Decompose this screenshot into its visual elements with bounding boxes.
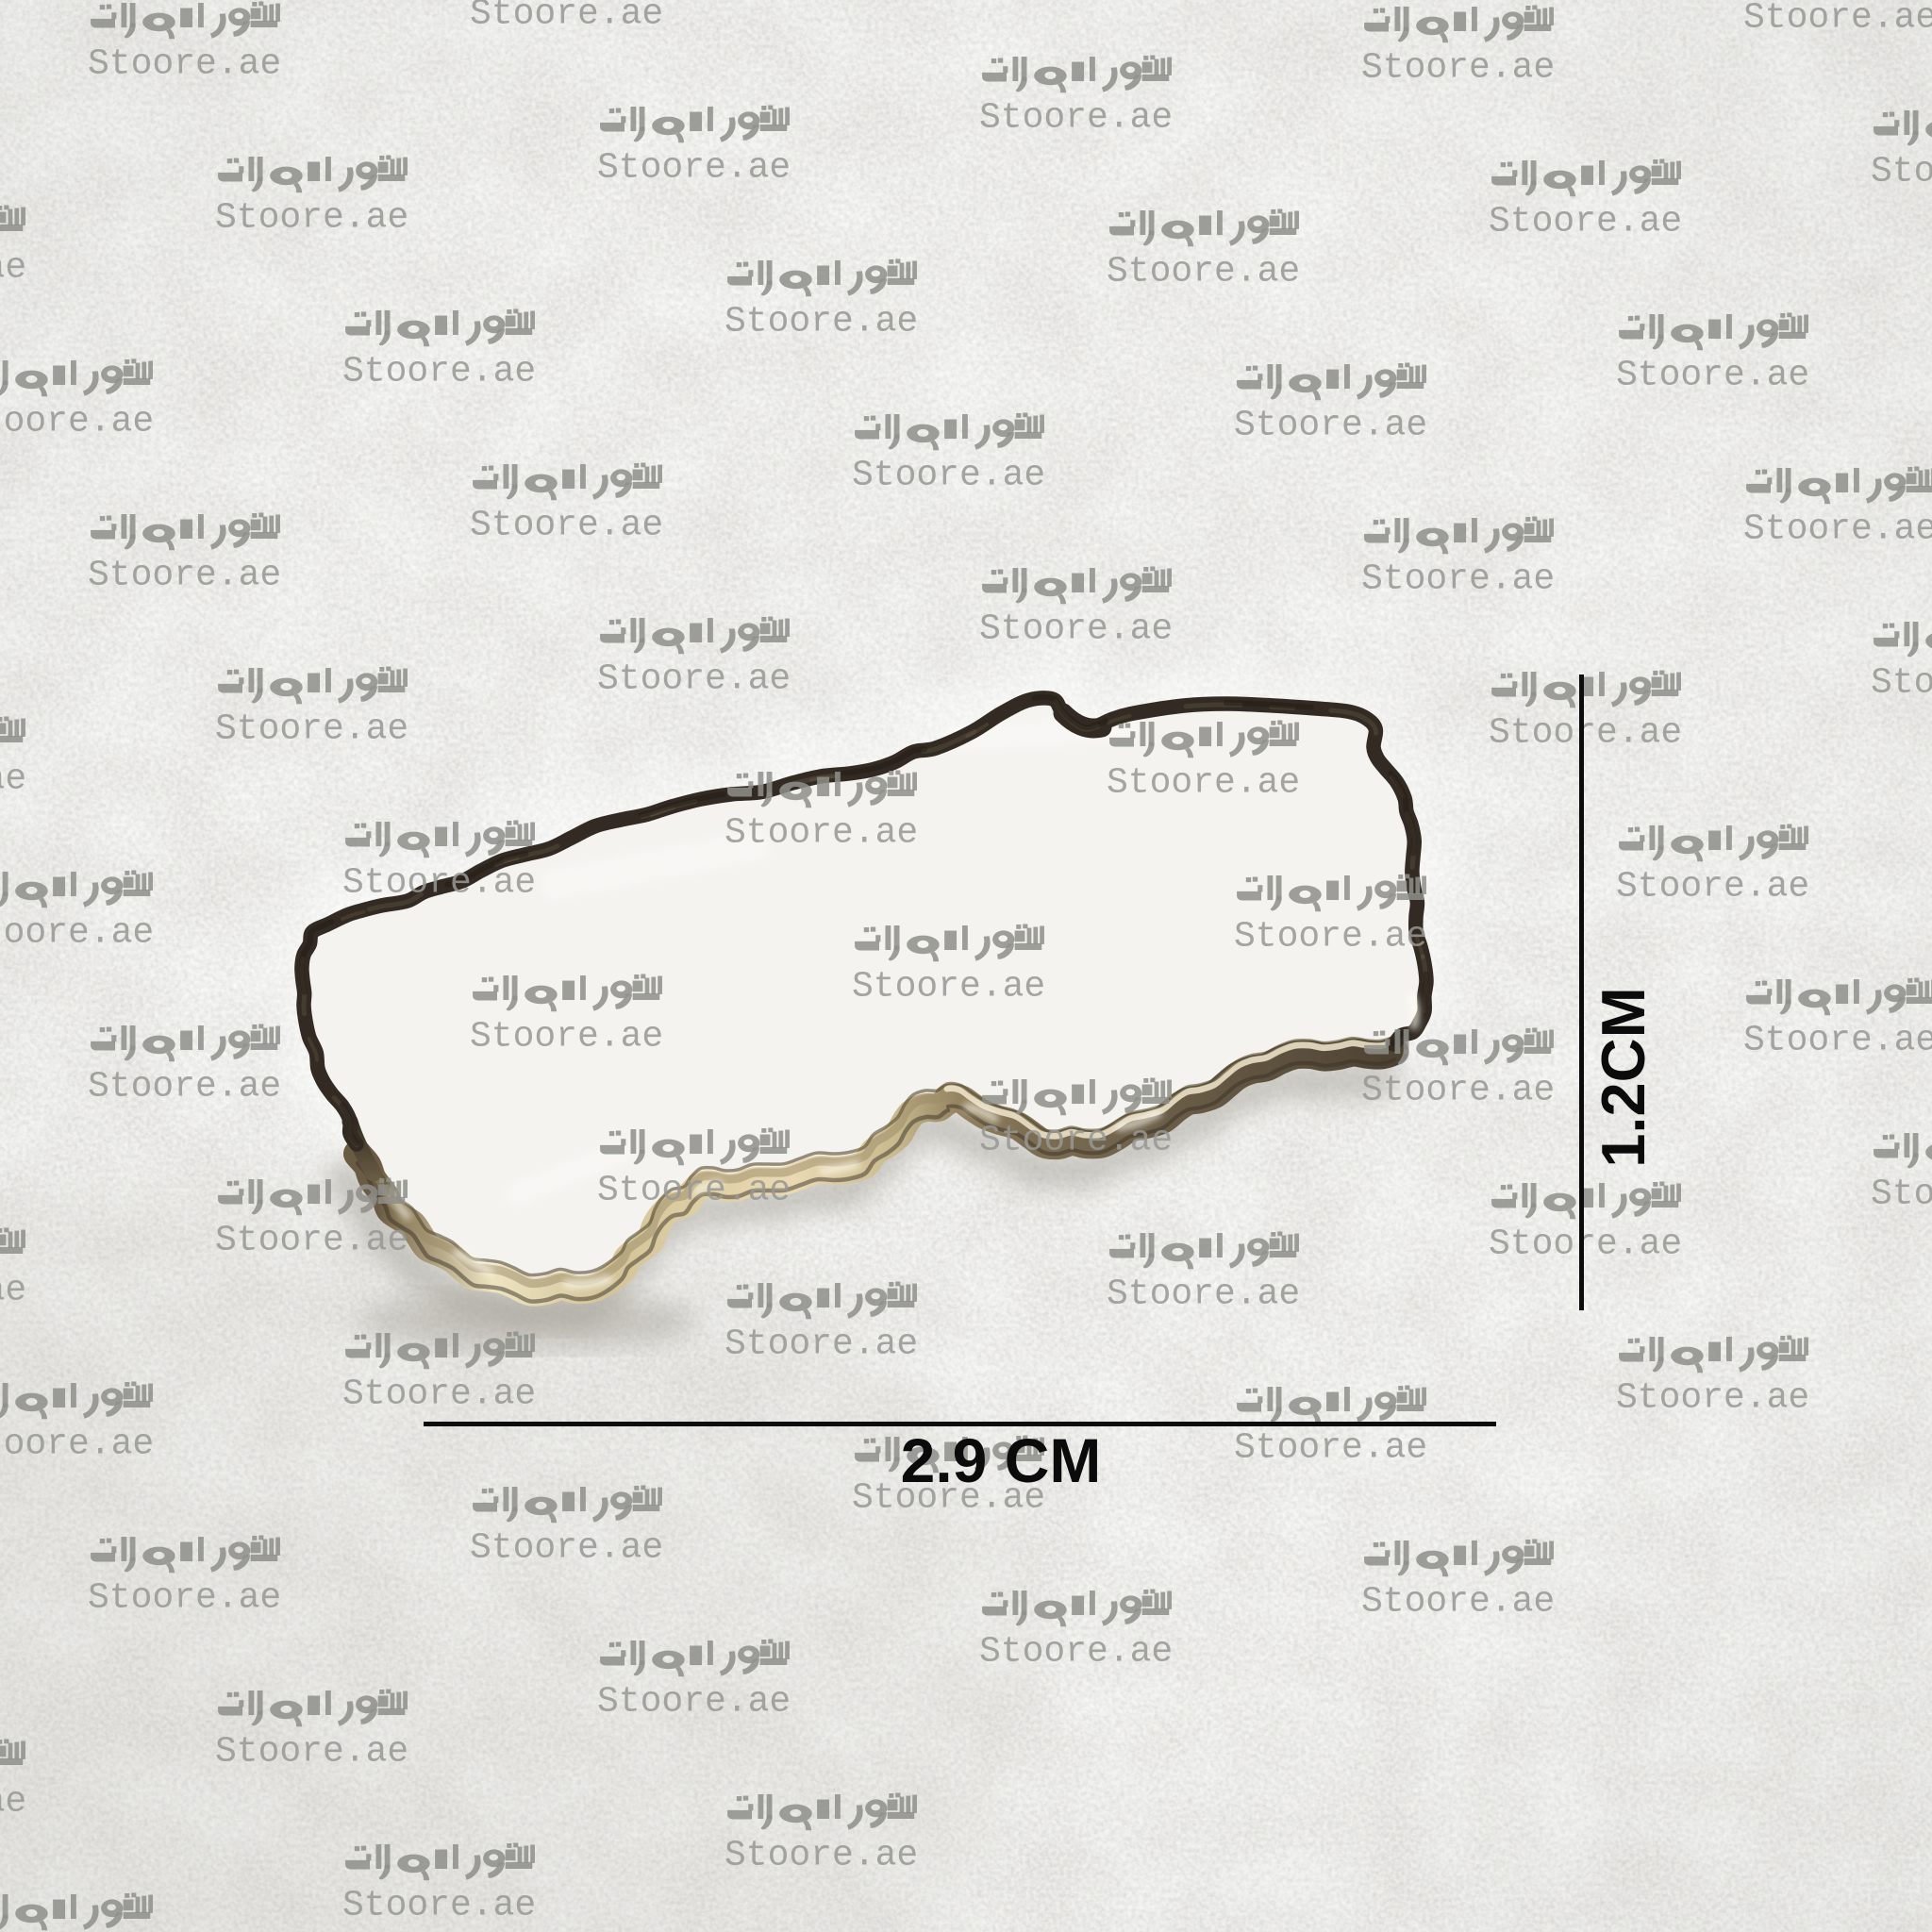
svg-text:1.2CM: 1.2CM <box>1589 987 1657 1167</box>
svg-text:2.9 CM: 2.9 CM <box>901 1425 1102 1495</box>
